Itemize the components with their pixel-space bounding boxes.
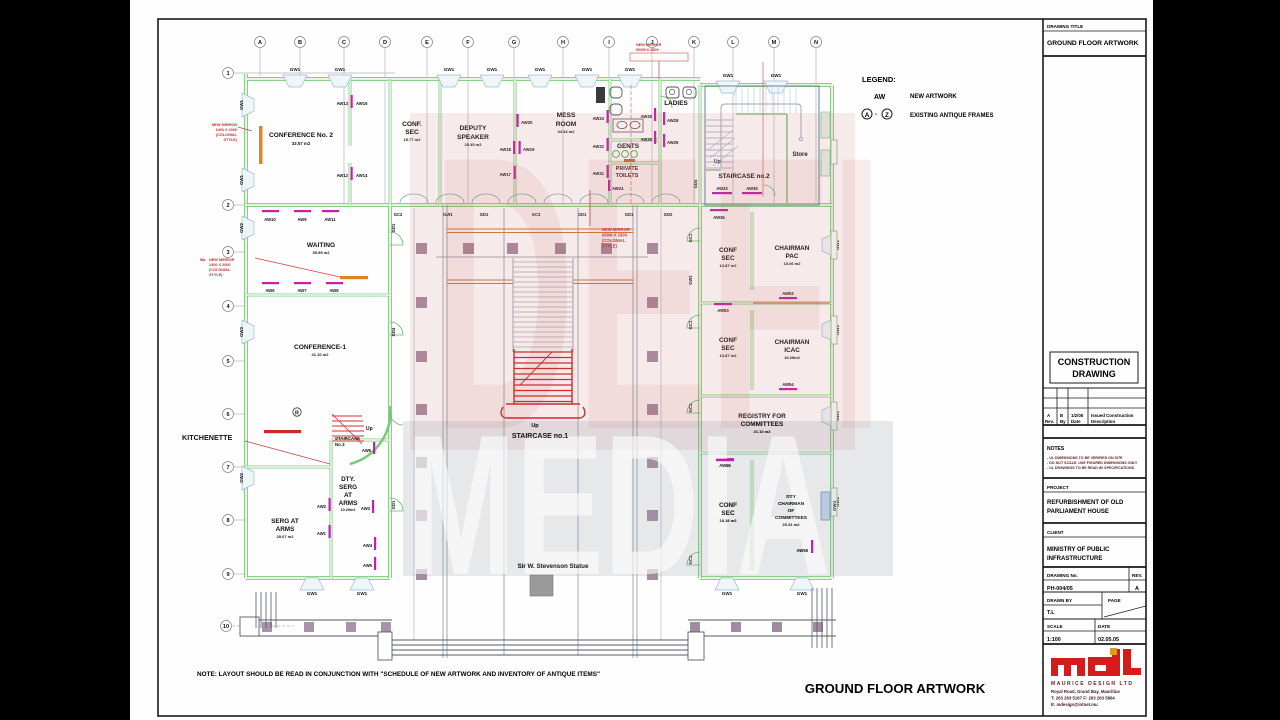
svg-text:AW6: AW6: [265, 288, 275, 293]
svg-text:INFRASTRUCTURE: INFRASTRUCTURE: [1047, 556, 1102, 562]
svg-text:Sir W. Stevenson Statue: Sir W. Stevenson Statue: [518, 563, 589, 570]
svg-text:Date: Date: [1071, 419, 1081, 424]
svg-text:10: 10: [223, 624, 229, 630]
svg-text:M: M: [772, 40, 777, 46]
svg-text:A: A: [1135, 586, 1139, 592]
svg-text:GD4: GD4: [391, 327, 396, 336]
svg-text:AW11: AW11: [324, 217, 336, 222]
svg-text:B: B: [1060, 413, 1063, 418]
svg-text:GW1: GW1: [239, 174, 244, 185]
svg-text:AT: AT: [344, 492, 352, 499]
svg-text:N: N: [814, 40, 818, 46]
svg-text:GW1: GW1: [357, 591, 368, 596]
svg-text:KITCHENETTE: KITCHENETTE: [182, 433, 233, 442]
svg-text:STAIRCASE no.1: STAIRCASE no.1: [512, 433, 568, 440]
svg-text:SERG AT: SERG AT: [271, 518, 299, 525]
svg-text:CONF: CONF: [719, 502, 737, 509]
svg-text:AW9: AW9: [297, 217, 307, 222]
svg-text:- DO NOT SCALE. USE FIGURED DI: - DO NOT SCALE. USE FIGURED DIMENSIONS O…: [1047, 461, 1138, 465]
svg-text:1: 1: [226, 71, 229, 77]
svg-text:Up: Up: [531, 423, 539, 429]
svg-text:NEW MIRROR: NEW MIRROR: [212, 123, 238, 127]
svg-text:H: H: [561, 40, 565, 46]
svg-text:C: C: [342, 40, 346, 46]
svg-text:900M X 2500: 900M X 2500: [636, 48, 659, 52]
svg-text:SERG: SERG: [339, 484, 357, 491]
svg-text:NEW MIRROR: NEW MIRROR: [636, 43, 662, 47]
svg-text:9: 9: [226, 572, 229, 578]
svg-text:MAURICE DESIGN LTD: MAURICE DESIGN LTD: [1051, 681, 1134, 687]
svg-text:5: 5: [226, 359, 229, 365]
svg-text:AW2: AW2: [317, 504, 327, 509]
svg-text:PARLIAMENT HOUSE: PARLIAMENT HOUSE: [1047, 509, 1109, 515]
svg-text:AW8: AW8: [329, 288, 339, 293]
svg-text:AW5: AW5: [363, 563, 373, 568]
svg-text:AW10: AW10: [264, 217, 276, 222]
svg-text:1:100: 1:100: [1047, 637, 1061, 643]
svg-text:GW1: GW1: [582, 67, 593, 72]
svg-text:- UL DIMENSIONS TO BE VERIFIED: - UL DIMENSIONS TO BE VERIFIED ON SITE: [1047, 456, 1123, 460]
svg-text:GC2: GC2: [394, 212, 403, 217]
svg-text:GW1: GW1: [307, 591, 318, 596]
svg-text:E: mdesign@intnet.mu: E: mdesign@intnet.mu: [1051, 702, 1098, 707]
svg-text:MINISTRY OF PUBLIC: MINISTRY OF PUBLIC: [1047, 547, 1110, 553]
svg-text:F: F: [466, 40, 470, 46]
svg-text:B: B: [298, 40, 302, 46]
svg-text:STAIRCASE: STAIRCASE: [335, 436, 360, 441]
svg-text:1/2/05: 1/2/05: [1071, 413, 1084, 418]
svg-text:GROUND FLOOR ARTWORK: GROUND FLOOR ARTWORK: [1047, 40, 1139, 47]
svg-text:Royal Road, Grand Bay, Mauriti: Royal Road, Grand Bay, Mauritius: [1051, 689, 1121, 694]
svg-text:PROJECT: PROJECT: [1047, 485, 1069, 490]
svg-text:AW55: AW55: [719, 463, 731, 468]
svg-text:CHAIRMAN: CHAIRMAN: [778, 501, 805, 507]
svg-text:20.31 m2: 20.31 m2: [783, 522, 801, 527]
svg-text:CLIENT: CLIENT: [1047, 530, 1064, 535]
svg-text:GW2: GW2: [239, 472, 244, 483]
svg-text:AW14: AW14: [356, 173, 368, 178]
svg-text:GW1: GW1: [290, 67, 301, 72]
svg-text:GW1: GW1: [625, 67, 636, 72]
svg-text:DRAWING TITLE: DRAWING TITLE: [1047, 24, 1083, 29]
svg-text:GW1: GW1: [535, 67, 546, 72]
svg-text:Issued Construction: Issued Construction: [1091, 413, 1134, 418]
svg-text:PH-004/05: PH-004/05: [1047, 586, 1073, 592]
svg-text:7: 7: [226, 465, 229, 471]
svg-text:DTY: DTY: [786, 494, 796, 500]
svg-text:AW1: AW1: [317, 531, 327, 536]
svg-text:DTY.: DTY.: [341, 476, 355, 483]
svg-text:SCALE: SCALE: [1047, 624, 1063, 629]
svg-text:ARMS: ARMS: [339, 500, 359, 507]
svg-text:NOTES: NOTES: [1047, 446, 1065, 452]
svg-text:AW4: AW4: [363, 543, 373, 548]
svg-text:02.05.05: 02.05.05: [1098, 637, 1119, 643]
svg-text:AW3: AW3: [361, 506, 371, 511]
svg-text:EXISTING ANTIQUE FRAMES: EXISTING ANTIQUE FRAMES: [910, 113, 993, 119]
svg-text:GD1: GD1: [391, 223, 396, 232]
svg-text:L: L: [731, 40, 735, 46]
svg-text:25.07 m2: 25.07 m2: [277, 534, 295, 539]
svg-text:T.L: T.L: [1047, 610, 1055, 616]
svg-text:SEC: SEC: [721, 510, 735, 517]
svg-text:A: A: [258, 40, 262, 46]
svg-text:ARMS: ARMS: [276, 526, 296, 533]
svg-text:8: 8: [226, 518, 229, 524]
svg-text:REFURBISHMENT OF OLD: REFURBISHMENT OF OLD: [1047, 500, 1124, 506]
svg-text:NEW ARTWORK: NEW ARTWORK: [910, 94, 957, 100]
svg-text:AW13: AW13: [337, 101, 349, 106]
svg-text:NOTE: LAYOUT SHOULD BE READ IN: NOTE: LAYOUT SHOULD BE READ IN CONJUNCTI…: [197, 671, 600, 678]
svg-text:10.29m2: 10.29m2: [341, 508, 356, 512]
svg-text:G: G: [512, 40, 516, 46]
svg-text:WAITING: WAITING: [307, 242, 335, 249]
svg-text:CONSTRUCTION: CONSTRUCTION: [1058, 357, 1131, 367]
svg-text:AW58: AW58: [797, 548, 809, 553]
svg-text:DRAWING: DRAWING: [1072, 369, 1116, 379]
svg-text:STYLE): STYLE): [209, 273, 223, 277]
svg-text:CONFERENCE No. 2: CONFERENCE No. 2: [269, 132, 333, 139]
svg-text:D: D: [383, 40, 387, 46]
svg-text:Ma: Ma: [200, 258, 206, 262]
svg-text:Description: Description: [1091, 419, 1115, 424]
svg-text:AW7: AW7: [297, 288, 307, 293]
svg-text:DRAWN BY: DRAWN BY: [1047, 598, 1072, 603]
svg-text:No.3: No.3: [335, 442, 345, 447]
svg-text:2: 2: [226, 203, 229, 209]
svg-text:Z: Z: [885, 112, 889, 119]
svg-text:6: 6: [226, 412, 229, 418]
svg-text:GW2: GW2: [239, 222, 244, 233]
svg-text:Up: Up: [366, 426, 373, 432]
svg-text:33.57 m2: 33.57 m2: [292, 141, 311, 146]
svg-text:GW1: GW1: [487, 67, 498, 72]
svg-text:(COLONIAL: (COLONIAL: [209, 268, 231, 272]
svg-text:GW3: GW3: [239, 326, 244, 337]
svg-text:REV.: REV.: [1132, 573, 1142, 578]
svg-text:21.10 m2: 21.10 m2: [754, 429, 772, 434]
svg-text:41.10 m2: 41.10 m2: [312, 352, 330, 357]
svg-text:COMMITTEES: COMMITTEES: [741, 421, 784, 428]
svg-text:GW1: GW1: [444, 67, 455, 72]
svg-text:AW15: AW15: [356, 101, 368, 106]
svg-text:(COLONIAL: (COLONIAL: [216, 133, 238, 137]
svg-text:AW6: AW6: [362, 448, 372, 453]
svg-text:K: K: [692, 40, 696, 46]
svg-text:- UL DRAWINGS TO BE READ W/ SP: - UL DRAWINGS TO BE READ W/ SPECIFICATIO…: [1047, 466, 1135, 470]
svg-text:1400 X 2000: 1400 X 2000: [209, 263, 231, 267]
svg-text:GROUND FLOOR ARTWORK: GROUND FLOOR ARTWORK: [805, 681, 986, 696]
svg-text:DRAWING No.: DRAWING No.: [1047, 573, 1078, 578]
svg-text:NEW MIRROR: NEW MIRROR: [209, 258, 235, 262]
svg-text:By: By: [1060, 419, 1066, 424]
svg-text:PAGE: PAGE: [1108, 598, 1121, 603]
svg-text:1400 X 2000: 1400 X 2000: [215, 128, 237, 132]
svg-text:DATE: DATE: [1098, 624, 1110, 629]
svg-text:E: E: [425, 40, 429, 46]
svg-text:CONFERENCE-1: CONFERENCE-1: [294, 344, 346, 351]
svg-text:GD1: GD1: [391, 500, 396, 509]
svg-text:GW1: GW1: [335, 67, 346, 72]
svg-text:OF: OF: [788, 508, 795, 514]
svg-text:AW12: AW12: [337, 173, 349, 178]
svg-text:Rev.: Rev.: [1045, 419, 1054, 424]
svg-text:STYLE): STYLE): [223, 138, 237, 142]
svg-text:18.16 m2: 18.16 m2: [720, 518, 738, 523]
svg-text:COMMITTEES: COMMITTEES: [775, 515, 808, 521]
svg-text:3: 3: [226, 250, 229, 256]
svg-text:R: R: [295, 411, 299, 417]
svg-text:GW1: GW1: [239, 99, 244, 110]
svg-text:T: 263 263 5167 F: 263 263 58: T: 263 263 5167 F: 263 263 5864: [1051, 696, 1115, 701]
svg-text:35.59 m2: 35.59 m2: [313, 250, 331, 255]
